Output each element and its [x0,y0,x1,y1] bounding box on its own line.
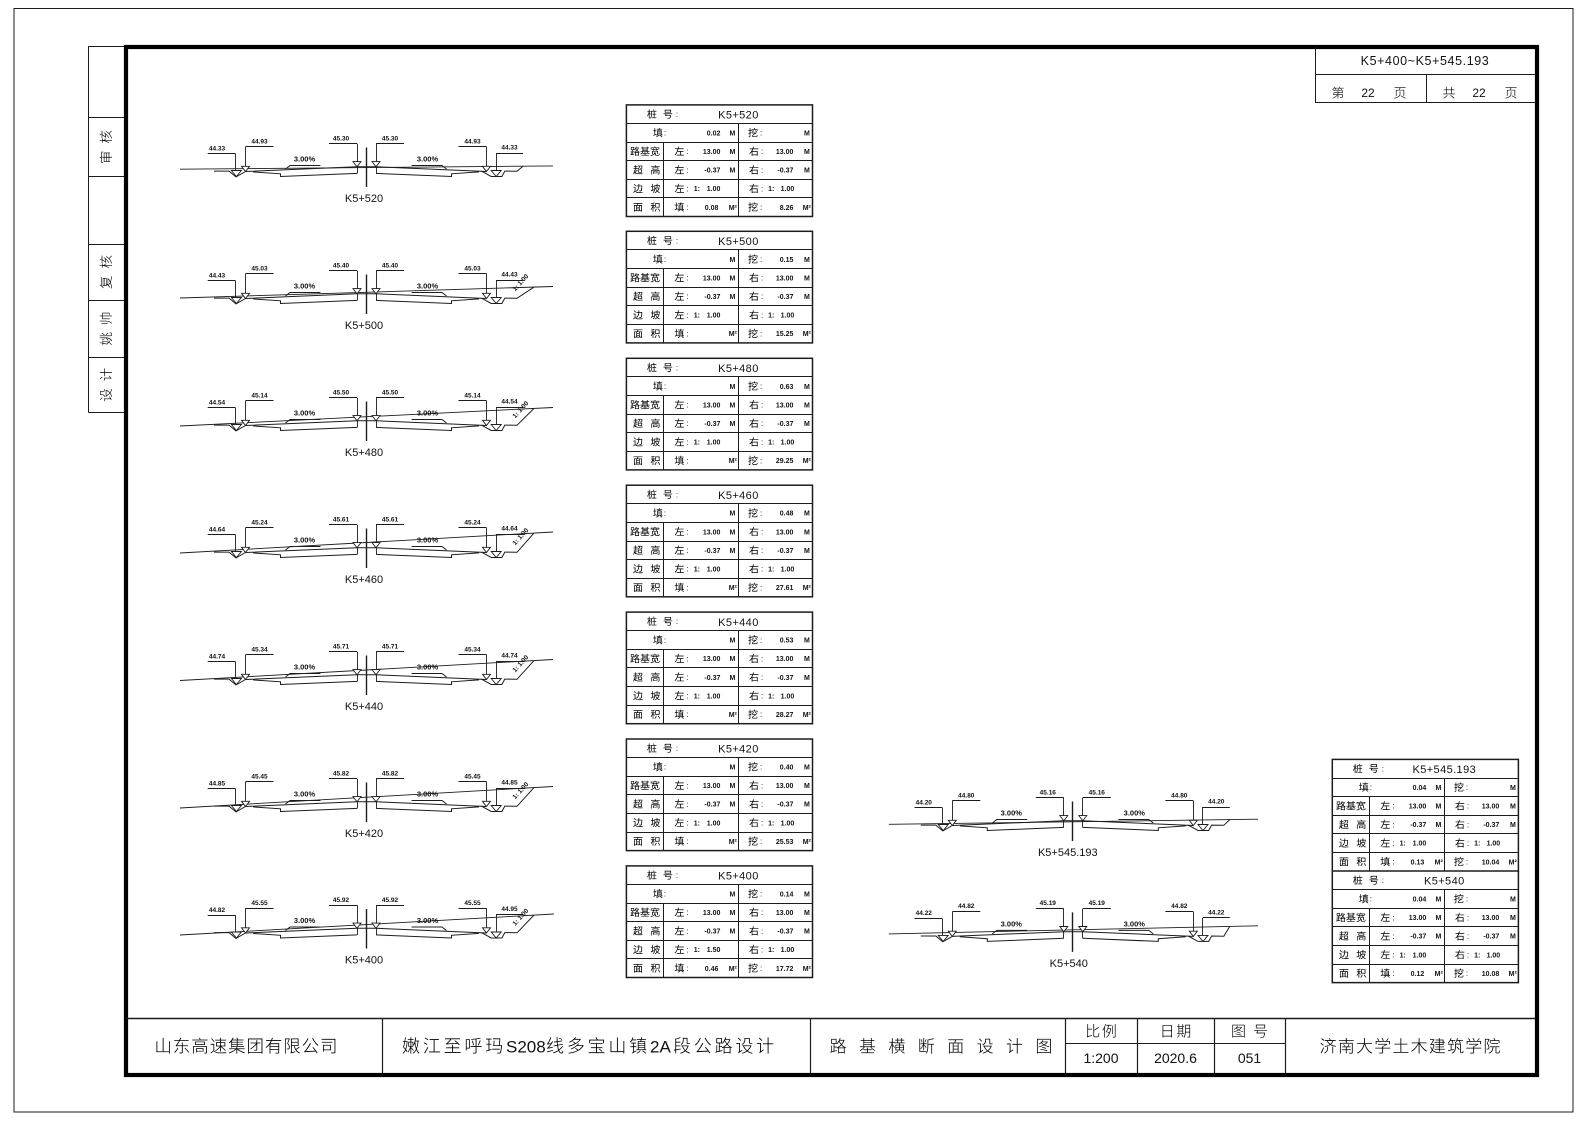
svg-text::: : [686,438,688,447]
svg-text::: : [676,363,678,372]
svg-text::: : [1467,951,1469,960]
svg-text::: : [1392,802,1394,811]
svg-text:45.16: 45.16 [1040,789,1057,796]
svg-text::: : [1466,858,1468,867]
svg-text:44.33: 44.33 [501,145,518,152]
svg-text:-0.37: -0.37 [777,168,793,175]
svg-text:13.00: 13.00 [703,656,721,663]
svg-text:45.50: 45.50 [333,389,350,396]
svg-text:45.71: 45.71 [382,643,399,650]
svg-text::: : [761,654,763,663]
svg-text::: : [761,908,763,917]
svg-text::: : [686,565,688,574]
svg-text:10.08: 10.08 [1482,971,1500,978]
svg-text:22: 22 [1361,86,1375,100]
svg-text:44.80: 44.80 [958,792,975,799]
svg-text:45.30: 45.30 [382,135,399,142]
svg-text::: : [664,763,666,772]
svg-text:45.92: 45.92 [333,897,350,904]
svg-text:3.00%: 3.00% [417,282,439,291]
svg-text:-0.37: -0.37 [1410,822,1426,829]
svg-text:-0.37: -0.37 [704,294,720,301]
svg-text::: : [761,800,763,809]
svg-text:M²: M² [729,585,738,592]
svg-text:1.00: 1.00 [781,693,795,700]
svg-text:1.50: 1.50 [707,947,721,954]
svg-text:M: M [1510,915,1516,922]
svg-text:44.20: 44.20 [1208,799,1225,806]
svg-text:44.54: 44.54 [501,399,518,406]
svg-text:45.82: 45.82 [333,770,350,777]
svg-text:13.00: 13.00 [703,910,721,917]
svg-text:1.00: 1.00 [781,313,795,320]
svg-text::: : [760,382,762,391]
svg-text:M: M [730,765,736,772]
svg-text:M: M [730,168,736,175]
svg-text::: : [1370,783,1372,792]
svg-text:1.00: 1.00 [1413,952,1427,959]
svg-text:13.00: 13.00 [703,402,721,409]
svg-text:44.54: 44.54 [209,399,226,406]
svg-text::: : [761,147,763,156]
svg-text:M: M [730,638,736,645]
svg-text:3.00%: 3.00% [1001,920,1023,929]
svg-text::: : [760,583,762,592]
svg-text::: : [664,382,666,391]
svg-text:3.00%: 3.00% [417,155,439,164]
svg-text:44.22: 44.22 [916,910,933,917]
svg-text:M: M [1510,804,1516,811]
svg-text:13.00: 13.00 [776,783,794,790]
svg-text::: : [686,583,688,592]
svg-text::: : [676,617,678,626]
svg-text:K5+540: K5+540 [1424,876,1465,888]
svg-text:1.00: 1.00 [781,440,795,447]
svg-text::: : [760,255,762,264]
svg-text:1:: 1: [1400,841,1406,848]
svg-text::: : [761,927,763,936]
svg-text:44.93: 44.93 [464,138,481,145]
svg-text:17.72: 17.72 [776,966,794,973]
svg-text::: : [686,166,688,175]
svg-text:M²: M² [1509,859,1518,866]
svg-text:M: M [804,765,810,772]
svg-text:M²: M² [729,839,738,846]
svg-text:1:: 1: [768,440,774,447]
svg-text:13.00: 13.00 [776,529,794,536]
svg-text:-0.37: -0.37 [777,421,793,428]
svg-text::: : [686,546,688,555]
svg-text:45.82: 45.82 [382,770,399,777]
svg-text:0.13: 0.13 [1411,859,1425,866]
svg-text:M: M [730,130,736,137]
svg-text:13.00: 13.00 [776,402,794,409]
svg-text:M: M [804,402,810,409]
svg-text:44.33: 44.33 [209,145,226,152]
svg-text::: : [686,819,688,828]
svg-text::: : [686,710,688,719]
svg-text:M: M [1435,785,1441,792]
svg-text:K5+520: K5+520 [345,193,383,205]
svg-text:45.55: 45.55 [251,900,268,907]
svg-text::: : [1392,839,1394,848]
svg-text:M²: M² [1509,971,1518,978]
svg-text:13.00: 13.00 [703,783,721,790]
svg-text:K5+400: K5+400 [345,955,383,967]
svg-text:M: M [804,149,810,156]
svg-text:M: M [730,656,736,663]
svg-text:M²: M² [729,966,738,973]
svg-text:M: M [730,529,736,536]
svg-text:1:: 1: [1474,952,1480,959]
svg-text:M: M [730,802,736,809]
svg-text::: : [761,274,763,283]
svg-text:44.82: 44.82 [209,907,226,914]
svg-text:1:: 1: [694,820,700,827]
svg-text:1:: 1: [768,820,774,827]
svg-text:13.00: 13.00 [1482,915,1500,922]
svg-text::: : [760,763,762,772]
svg-text::: : [761,184,763,193]
svg-text::: : [761,528,763,537]
svg-text:-0.37: -0.37 [704,929,720,936]
svg-text::: : [1392,932,1394,941]
svg-text:1.00: 1.00 [707,440,721,447]
svg-text:3.00%: 3.00% [294,663,316,672]
svg-text:13.00: 13.00 [1409,915,1427,922]
svg-text:44.85: 44.85 [209,780,226,787]
svg-text:44.74: 44.74 [209,653,226,660]
svg-text::: : [760,456,762,465]
svg-text::: : [686,311,688,320]
svg-text:M²: M² [803,458,812,465]
svg-text:M²: M² [803,839,812,846]
svg-text:1.00: 1.00 [1413,841,1427,848]
svg-text:44.85: 44.85 [501,780,518,787]
svg-text::: : [664,129,666,138]
svg-text:K5+545.193: K5+545.193 [1412,764,1476,776]
svg-text:M²: M² [803,712,812,719]
svg-text:45.61: 45.61 [382,516,399,523]
svg-text:1:: 1: [694,693,700,700]
svg-text:M²: M² [1435,971,1444,978]
svg-text:45.14: 45.14 [464,392,481,399]
svg-text::: : [1467,820,1469,829]
svg-text::: : [686,203,688,212]
svg-text:28.27: 28.27 [776,712,794,719]
svg-text:45.34: 45.34 [464,646,481,653]
svg-text::: : [686,456,688,465]
svg-text:M: M [1510,897,1516,904]
svg-text::: : [686,147,688,156]
svg-text::: : [1467,913,1469,922]
svg-text:1.00: 1.00 [707,820,721,827]
svg-text::: : [686,654,688,663]
svg-text:44.80: 44.80 [1171,792,1188,799]
svg-text:45.14: 45.14 [251,392,268,399]
svg-text::: : [761,819,763,828]
svg-text::: : [686,292,688,301]
svg-text:3.00%: 3.00% [294,282,316,291]
svg-text:45.55: 45.55 [464,900,481,907]
svg-text::: : [686,329,688,338]
svg-text:M: M [804,891,810,898]
svg-text:3.00%: 3.00% [1124,809,1146,818]
svg-text:M: M [730,384,736,391]
svg-text:2020.6: 2020.6 [1154,1050,1197,1066]
svg-text::: : [1467,839,1469,848]
svg-text:-0.37: -0.37 [777,929,793,936]
svg-text:13.00: 13.00 [703,529,721,536]
svg-text:3.00%: 3.00% [417,536,439,545]
svg-text:0.04: 0.04 [1413,785,1427,792]
svg-text:M: M [730,929,736,936]
svg-text:M: M [804,910,810,917]
svg-text::: : [686,184,688,193]
svg-text:3.00%: 3.00% [294,155,316,164]
svg-text:M²: M² [729,205,738,212]
svg-text::: : [676,110,678,119]
svg-text::: : [760,710,762,719]
svg-text:3.00%: 3.00% [1001,809,1023,818]
svg-text:K5+480: K5+480 [718,363,759,375]
svg-text:3.00%: 3.00% [1124,920,1146,929]
svg-text:45.30: 45.30 [333,135,350,142]
svg-text:M: M [804,802,810,809]
svg-text:M: M [730,275,736,282]
svg-text::: : [664,509,666,518]
svg-text:3.00%: 3.00% [294,409,316,418]
svg-text:1:: 1: [694,313,700,320]
svg-text:-0.37: -0.37 [1483,822,1499,829]
svg-text:1:: 1: [694,947,700,954]
svg-text:K5+480: K5+480 [345,447,383,459]
svg-text:3.00%: 3.00% [417,916,439,925]
svg-text:1.00: 1.00 [707,313,721,320]
svg-text::: : [686,673,688,682]
svg-text::: : [760,329,762,338]
svg-text:M: M [1510,822,1516,829]
svg-text:M: M [804,257,810,264]
svg-text:M: M [804,783,810,790]
svg-text::: : [686,800,688,809]
svg-text:M: M [804,168,810,175]
svg-text:13.00: 13.00 [1482,804,1500,811]
svg-text:M: M [1435,934,1441,941]
svg-text:44.64: 44.64 [501,526,518,533]
svg-text:44.95: 44.95 [501,906,518,913]
svg-text::: : [761,292,763,301]
svg-text:M: M [730,891,736,898]
svg-text:1:: 1: [694,186,700,193]
svg-text:13.00: 13.00 [776,149,794,156]
svg-text:44.43: 44.43 [501,272,518,279]
svg-text::: : [664,636,666,645]
svg-text::: : [761,546,763,555]
svg-text:M: M [730,294,736,301]
svg-text:M: M [804,675,810,682]
svg-text:45.24: 45.24 [251,519,268,526]
svg-text:45.40: 45.40 [333,262,350,269]
svg-text:45.03: 45.03 [251,265,268,272]
svg-text:K5+460: K5+460 [345,574,383,586]
svg-text:1:: 1: [1474,841,1480,848]
svg-text::: : [676,871,678,880]
svg-text:8.26: 8.26 [780,205,794,212]
svg-text:0.12: 0.12 [1411,971,1425,978]
svg-text:1:: 1: [768,947,774,954]
svg-text::: : [761,401,763,410]
svg-text::: : [676,490,678,499]
svg-text:45.61: 45.61 [333,516,350,523]
svg-text::: : [1466,895,1468,904]
svg-text:M: M [730,675,736,682]
svg-text::: : [686,401,688,410]
svg-text::: : [761,166,763,175]
svg-text::: : [1392,858,1394,867]
svg-text::: : [761,945,763,954]
svg-text::: : [686,964,688,973]
svg-text::: : [1392,913,1394,922]
svg-text:45.45: 45.45 [251,773,268,780]
svg-text::: : [760,509,762,518]
svg-text:44.93: 44.93 [251,138,268,145]
svg-text:45.92: 45.92 [382,897,399,904]
svg-text:13.00: 13.00 [703,149,721,156]
svg-text:1.00: 1.00 [1487,841,1501,848]
svg-text:M: M [1435,897,1441,904]
svg-text:M: M [1435,804,1441,811]
svg-text:0.63: 0.63 [780,384,794,391]
svg-text:0.08: 0.08 [705,205,719,212]
svg-text::: : [664,255,666,264]
svg-text:0.04: 0.04 [1413,897,1427,904]
svg-text:1.00: 1.00 [781,820,795,827]
svg-text::: : [686,837,688,846]
svg-text:1.00: 1.00 [707,186,721,193]
svg-text:K5+440: K5+440 [718,617,759,629]
svg-text:M: M [730,421,736,428]
svg-text:15.25: 15.25 [776,331,794,338]
svg-text::: : [1467,932,1469,941]
svg-text:M: M [730,257,736,264]
svg-text:M²: M² [803,966,812,973]
svg-text:M: M [1435,915,1441,922]
svg-text:M: M [730,149,736,156]
svg-text:0.53: 0.53 [780,638,794,645]
svg-text::: : [686,927,688,936]
svg-text:-0.37: -0.37 [704,548,720,555]
svg-text:-0.37: -0.37 [777,548,793,555]
svg-text:M: M [804,638,810,645]
svg-text:K5+500: K5+500 [718,236,759,248]
svg-text:M: M [804,656,810,663]
svg-text:-0.37: -0.37 [704,802,720,809]
svg-text:-0.37: -0.37 [1483,934,1499,941]
svg-text:3.00%: 3.00% [417,790,439,799]
svg-text:3.00%: 3.00% [294,536,316,545]
svg-text:13.00: 13.00 [776,656,794,663]
svg-text:M: M [804,421,810,428]
svg-text::: : [760,203,762,212]
svg-text::: : [761,692,763,701]
svg-text::: : [676,236,678,245]
svg-text:45.19: 45.19 [1040,900,1057,907]
svg-text:K5+420: K5+420 [345,828,383,840]
svg-text:1.00: 1.00 [781,186,795,193]
svg-text:M²: M² [729,331,738,338]
svg-text:-0.37: -0.37 [704,168,720,175]
svg-text:K5+460: K5+460 [718,490,759,502]
svg-text:10.04: 10.04 [1482,859,1500,866]
svg-text::: : [686,781,688,790]
svg-text::: : [761,673,763,682]
svg-text::: : [686,419,688,428]
svg-text:-0.37: -0.37 [704,421,720,428]
svg-text:M: M [804,275,810,282]
svg-text:45.16: 45.16 [1089,789,1106,796]
svg-text:M: M [1510,785,1516,792]
svg-text:3.00%: 3.00% [417,663,439,672]
svg-text:13.00: 13.00 [776,910,794,917]
svg-text:M²: M² [803,205,812,212]
svg-text::: : [686,528,688,537]
svg-text:44.82: 44.82 [958,903,975,910]
svg-text:M: M [1435,822,1441,829]
svg-text::: : [1392,951,1394,960]
svg-text:1:: 1: [768,313,774,320]
svg-text:45.34: 45.34 [251,646,268,653]
svg-text:M²: M² [1435,859,1444,866]
svg-text:M: M [730,783,736,790]
svg-text:1:: 1: [768,567,774,574]
svg-text::: : [761,438,763,447]
svg-text::: : [1467,802,1469,811]
svg-text:M²: M² [729,458,738,465]
svg-text:K5+520: K5+520 [718,110,759,122]
svg-text:45.24: 45.24 [464,519,481,526]
svg-text::: : [760,837,762,846]
svg-text:1:: 1: [768,186,774,193]
svg-text:K5+545.193: K5+545.193 [1038,847,1098,859]
svg-text:44.20: 44.20 [916,799,933,806]
svg-text:0.40: 0.40 [780,765,794,772]
svg-text::: : [760,964,762,973]
svg-text:K5+420: K5+420 [718,744,759,756]
svg-text:44.22: 44.22 [1208,909,1225,916]
svg-text:M: M [804,384,810,391]
svg-text:-0.37: -0.37 [777,675,793,682]
svg-text:29.25: 29.25 [776,458,794,465]
svg-text:M: M [804,529,810,536]
svg-text::: : [1382,765,1384,774]
svg-text:-0.37: -0.37 [777,294,793,301]
svg-text:K5+440: K5+440 [345,701,383,713]
svg-text:K5+400: K5+400 [718,871,759,883]
svg-text:45.40: 45.40 [382,262,399,269]
svg-text:1:: 1: [1400,952,1406,959]
svg-text::: : [1370,895,1372,904]
svg-text::: : [1392,969,1394,978]
svg-text::: : [761,311,763,320]
svg-text:22: 22 [1472,86,1486,100]
svg-text:13.00: 13.00 [703,275,721,282]
svg-text::: : [761,565,763,574]
svg-text:1.00: 1.00 [781,947,795,954]
svg-text:45.19: 45.19 [1089,900,1106,907]
svg-text:45.50: 45.50 [382,389,399,396]
svg-text:M: M [804,130,810,137]
